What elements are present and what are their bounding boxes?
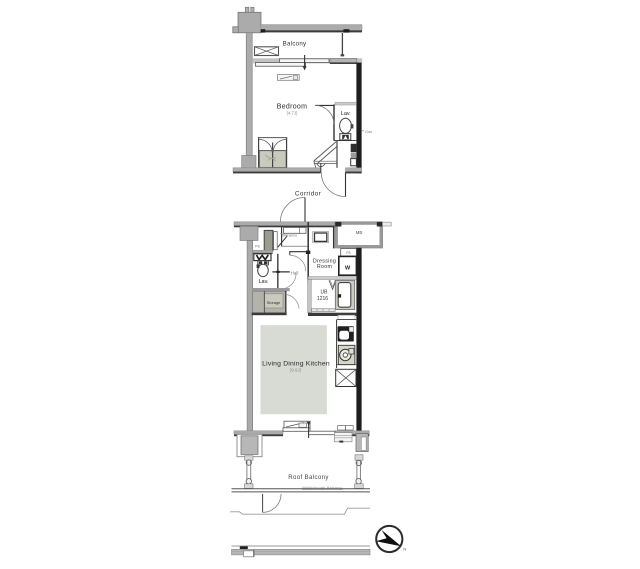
svg-text:Balcony: Balcony — [283, 41, 307, 48]
svg-text:Bedroom: Bedroom — [277, 103, 308, 110]
svg-text:UB: UB — [321, 290, 329, 296]
svg-text:Gas: Gas — [365, 129, 372, 134]
svg-text:Room: Room — [317, 264, 333, 270]
svg-text:MB: MB — [356, 230, 363, 235]
svg-text:N: N — [403, 547, 406, 552]
svg-text:Living Dining Kitchen: Living Dining Kitchen — [262, 360, 330, 367]
svg-text:Lav.: Lav. — [259, 279, 269, 285]
svg-text:PS: PS — [255, 244, 260, 248]
svg-text:(4.7J): (4.7J) — [287, 110, 298, 115]
svg-text:Corridor: Corridor — [295, 190, 322, 197]
svg-text:Lav.: Lav. — [341, 111, 351, 117]
svg-text:(9.9J): (9.9J) — [290, 368, 302, 373]
svg-text:Hall: Hall — [291, 271, 299, 276]
svg-text:Entrance: Entrance — [282, 233, 298, 238]
svg-text:Roof Balcony: Roof Balcony — [288, 475, 329, 481]
svg-text:Storage: Storage — [267, 300, 281, 305]
svg-text:1216: 1216 — [317, 296, 328, 302]
svg-text:PS: PS — [346, 251, 350, 255]
